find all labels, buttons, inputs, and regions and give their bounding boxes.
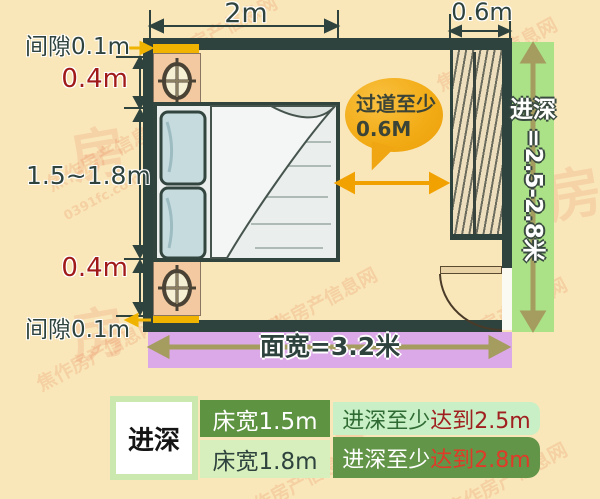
door-leaf xyxy=(440,266,502,274)
lamp-icon xyxy=(154,54,200,109)
aisle-callout-tail xyxy=(365,142,395,175)
legend-bed-width-1: 床宽1.5m xyxy=(200,400,330,437)
aisle-callout-line1: 过道至少 xyxy=(356,92,440,117)
dim-label-bed-width: 1.5~1.8m xyxy=(26,163,134,189)
dim-label-gap-bottom: 间隙0.1m xyxy=(12,318,130,342)
wardrobe xyxy=(450,50,502,240)
bedroom-dimension-infographic: 焦作房产信息网 焦作房产信息网 焦作房产信息网 焦作房产信息网 焦作房产信息网 … xyxy=(0,0,600,499)
dim-label-gap-top: 间隙0.1m xyxy=(12,35,130,59)
legend-depth-prefix-1: 进深至少 xyxy=(342,403,430,435)
aisle-callout-text: 过道至少 0.6M xyxy=(356,92,440,142)
lamp-icon xyxy=(154,262,200,315)
nightstand-bottom xyxy=(153,261,201,316)
gap-strip-top xyxy=(153,44,199,53)
dim-label-wardrobe-width: 0.6m xyxy=(442,0,522,25)
bed xyxy=(153,102,340,262)
dim-label-nightstand-bottom: 0.4m xyxy=(60,255,128,282)
dim-label-top-width: 2m xyxy=(206,0,286,28)
legend-header-frame: 进深 xyxy=(110,396,198,480)
legend-depth-req-1: 进深至少达到2.5m xyxy=(333,402,540,435)
legend-depth-value-2: 达到2.8m xyxy=(430,442,530,474)
face-width-label: 面宽=3.2米 xyxy=(148,334,512,360)
wall-right xyxy=(502,38,512,268)
aisle-callout-line2: 0.6M xyxy=(356,117,440,142)
legend-depth-prefix-2: 进深至少 xyxy=(342,442,430,474)
door-opening xyxy=(502,268,512,330)
legend-depth-value-1: 达到2.5m xyxy=(430,403,530,435)
legend-bed-width-2: 床宽1.8m xyxy=(200,440,330,478)
dim-label-nightstand-top: 0.4m xyxy=(60,66,128,93)
wardrobe-divider xyxy=(473,52,476,234)
legend-depth-req-2: 进深至少达到2.8m xyxy=(333,437,540,478)
depth-band-value: =2.5-2.8米 xyxy=(521,115,545,275)
legend-header: 进深 xyxy=(116,402,192,474)
